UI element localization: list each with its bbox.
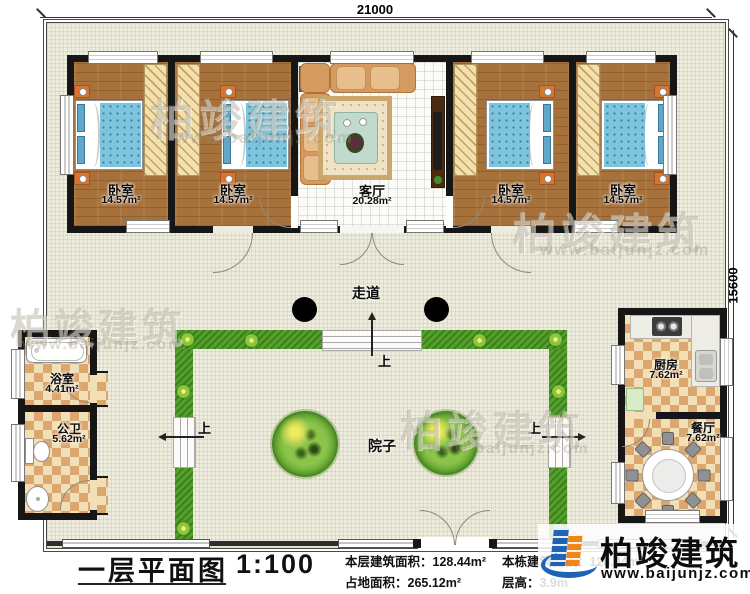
bed-sheet-fold [232, 103, 246, 167]
headboard-cushion [77, 104, 85, 132]
room-label-courtyard: 院子 [354, 436, 410, 456]
bed-sheet-fold [528, 103, 542, 167]
room-area-bath: 4.41m² [27, 383, 97, 395]
logo-swoosh-icon [541, 552, 597, 578]
sink-basin [699, 368, 713, 379]
flower-icon [549, 333, 562, 346]
wardrobe [177, 64, 200, 176]
headboard-cushion [223, 104, 231, 132]
mattress [604, 103, 645, 167]
stat-floor-area: 本层建筑面积：128.44m² [345, 551, 486, 570]
window [126, 220, 170, 233]
floor-plan-canvas: 21000 15600 上 上 上 [0, 0, 750, 594]
door-vestibule [97, 476, 108, 515]
window [300, 220, 338, 233]
up-arrowhead-icon [578, 433, 586, 441]
up-label-left: 上 [198, 418, 211, 437]
sofa-cushion [336, 66, 366, 90]
chair [698, 470, 711, 482]
drain-icon [34, 348, 39, 353]
window [406, 220, 444, 233]
flower-icon [552, 385, 565, 398]
room-area-bedroom2: 14.57m² [193, 194, 273, 206]
door-opening [90, 480, 97, 510]
sink-basin [699, 354, 713, 365]
coffee-table [334, 112, 378, 164]
room-area-bedroom1: 14.57m² [81, 194, 161, 206]
tree-icon [272, 411, 338, 477]
nightstand [539, 85, 555, 98]
door-opening [291, 196, 298, 228]
bed-sheet-fold [643, 103, 657, 167]
stove [652, 317, 682, 336]
up-arrowhead-icon [368, 312, 376, 320]
window [11, 424, 25, 482]
teacup-icon [343, 119, 351, 127]
dining-table [642, 449, 694, 501]
sofa-corner [300, 63, 330, 93]
lamp-icon [79, 88, 87, 96]
nightstand [74, 85, 90, 98]
door-vestibule [97, 371, 108, 407]
stat-ground-area: 占地面积：265.12m² [345, 572, 461, 591]
flower-icon [177, 522, 190, 535]
window [88, 51, 158, 64]
door-opening [625, 412, 656, 419]
table-plant-icon [346, 133, 364, 153]
hedge-top-right [422, 330, 567, 349]
window [586, 51, 656, 64]
lamp-icon [544, 88, 552, 96]
room-area-toilet: 5.62m² [34, 433, 104, 445]
steps-right [548, 417, 571, 468]
window [330, 51, 414, 64]
bed-sheet-fold [86, 103, 100, 167]
door-opening [446, 196, 453, 228]
nightstand [220, 85, 236, 98]
up-arrow-icon [371, 318, 373, 356]
dimension-top-line [40, 17, 712, 18]
mattress [100, 103, 141, 167]
room-area-bedroom4: 14.57m² [583, 194, 663, 206]
wardrobe [454, 64, 477, 176]
sink [26, 486, 49, 512]
fence-section [338, 539, 416, 548]
room-area-bedroom3: 14.57m² [471, 194, 551, 206]
flower-icon [177, 385, 190, 398]
mattress [489, 103, 530, 167]
window [720, 338, 733, 386]
flower-icon [473, 334, 486, 347]
sofa-cushion [370, 66, 400, 90]
french-door-opening [340, 226, 404, 233]
headboard-cushion [543, 136, 551, 164]
window [720, 437, 733, 501]
mattress [246, 103, 287, 167]
bathtub-inner [31, 342, 84, 361]
drain-icon [36, 497, 40, 501]
dimension-right-value: 15600 [726, 263, 741, 309]
room-label-corridor: 走道 [338, 283, 394, 303]
window [663, 95, 677, 175]
lamp-icon [225, 88, 233, 96]
room-area-kitchen: 7.62m² [631, 369, 701, 381]
logo-website: www.baijunjz.com [601, 565, 750, 582]
dimension-top-value: 21000 [330, 2, 420, 17]
column-icon [292, 297, 317, 322]
window [611, 462, 625, 504]
window [645, 510, 700, 523]
window [60, 95, 74, 175]
column-icon [424, 297, 449, 322]
headboard-cushion [77, 136, 85, 164]
up-label-right: 上 [528, 418, 541, 437]
window [611, 345, 625, 385]
dining-table-inner [652, 459, 686, 493]
bathtub [26, 338, 87, 363]
wardrobe [144, 64, 167, 176]
hedge-right-upper [549, 349, 567, 417]
teacup-icon [359, 118, 367, 126]
flower-icon [181, 333, 194, 346]
up-arrowhead-icon [158, 433, 166, 441]
wardrobe [577, 64, 600, 176]
window [11, 349, 25, 399]
title-underline [78, 583, 226, 585]
plan-scale: 1:100 [236, 549, 315, 580]
hedge-left-upper [175, 349, 193, 417]
headboard-cushion [543, 104, 551, 132]
small-plant-icon [434, 176, 442, 184]
fence-section [62, 539, 210, 548]
room-area-living: 20.28m² [332, 195, 412, 207]
steps-left [173, 417, 196, 468]
chair [626, 470, 639, 482]
headboard-cushion [223, 136, 231, 164]
up-arrow-icon [542, 436, 580, 438]
flower-icon [245, 334, 258, 347]
tv-screen [433, 112, 442, 170]
tree-icon [414, 411, 478, 475]
gate-post [489, 539, 497, 548]
up-label-top: 上 [378, 351, 391, 370]
kitchen-cabinet [626, 388, 644, 411]
door-opening [213, 226, 253, 233]
window [574, 220, 618, 233]
room-area-dining: 7.62m² [668, 432, 738, 444]
door-opening [491, 226, 531, 233]
window [200, 51, 273, 64]
window [471, 51, 544, 64]
